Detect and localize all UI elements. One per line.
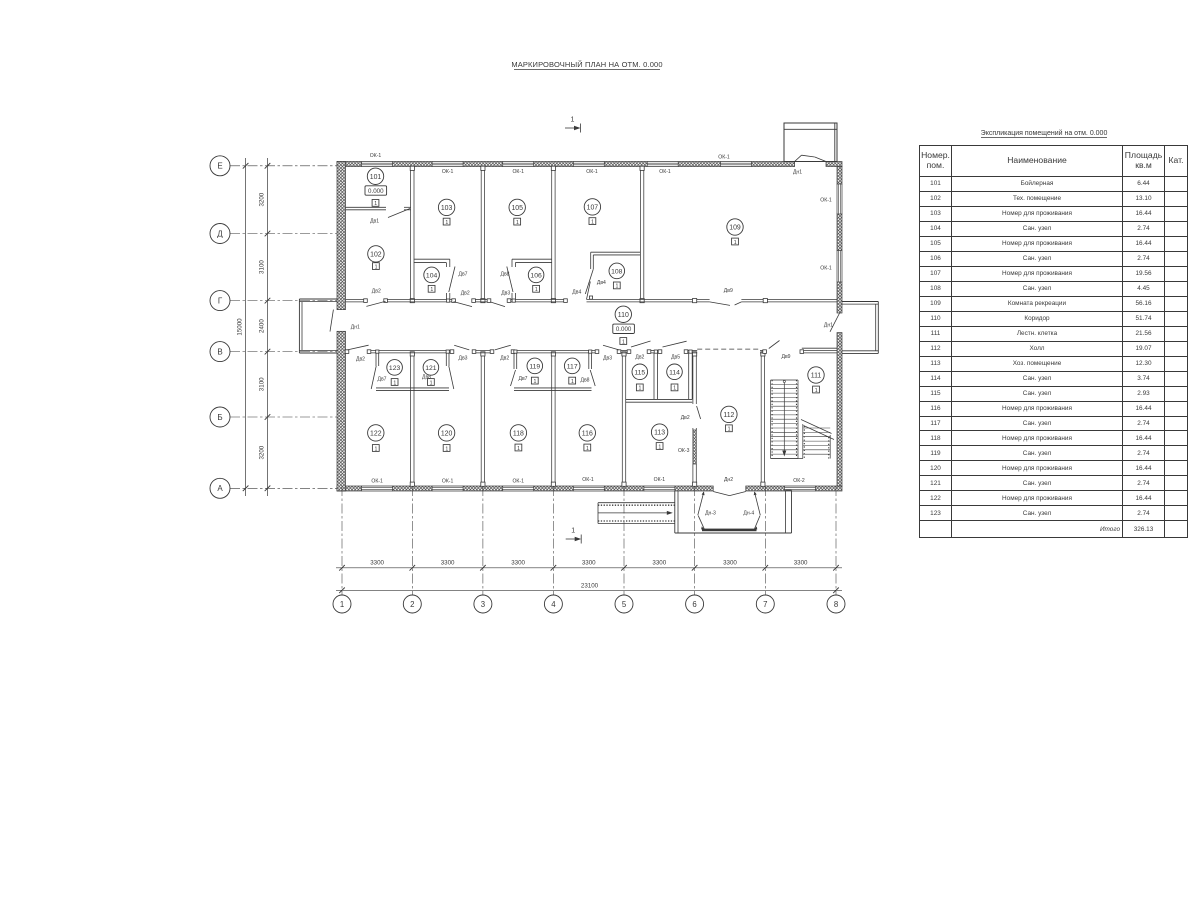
svg-text:Е: Е <box>217 162 222 171</box>
svg-text:ОК-1: ОК-1 <box>820 198 832 204</box>
svg-text:108: 108 <box>611 269 623 276</box>
svg-text:Дн2: Дн2 <box>724 477 733 483</box>
svg-text:1: 1 <box>734 240 737 246</box>
svg-text:Дн-4: Дн-4 <box>743 511 754 517</box>
svg-text:Б: Б <box>217 413 222 422</box>
svg-text:8: 8 <box>834 600 838 609</box>
svg-text:1: 1 <box>728 427 731 433</box>
svg-text:101: 101 <box>370 174 382 181</box>
svg-text:Экспликация помещений на отм.: Экспликация помещений на отм. 0.000 <box>981 129 1108 137</box>
svg-text:Дв8: Дв8 <box>581 377 590 383</box>
svg-text:3300: 3300 <box>370 559 384 566</box>
svg-text:1: 1 <box>591 219 594 225</box>
svg-text:15000: 15000 <box>237 318 244 336</box>
svg-text:6: 6 <box>692 600 696 609</box>
svg-text:1: 1 <box>516 220 519 226</box>
svg-text:1: 1 <box>616 284 619 290</box>
svg-text:Г: Г <box>218 297 223 306</box>
svg-text:3300: 3300 <box>794 559 808 566</box>
svg-text:117: 117 <box>567 364 578 371</box>
svg-text:Дв9: Дв9 <box>724 288 733 294</box>
svg-text:ОК-3: ОК-3 <box>678 448 690 454</box>
svg-text:107: 107 <box>587 205 599 212</box>
svg-text:Дв1: Дв1 <box>370 219 379 225</box>
svg-text:106: 106 <box>530 273 542 280</box>
svg-text:ОК-1: ОК-1 <box>442 478 454 484</box>
svg-text:В: В <box>217 348 222 357</box>
svg-text:116: 116 <box>582 431 593 438</box>
svg-text:111: 111 <box>811 373 822 380</box>
svg-text:ОК-1: ОК-1 <box>718 155 730 161</box>
svg-text:Дв3: Дв3 <box>603 356 612 362</box>
svg-text:114: 114 <box>669 369 680 376</box>
svg-text:ОК-1: ОК-1 <box>820 266 832 272</box>
svg-text:1: 1 <box>534 379 537 385</box>
svg-text:Дв5: Дв5 <box>671 355 680 361</box>
svg-text:1: 1 <box>639 386 642 392</box>
svg-text:Дв2: Дв2 <box>356 356 365 362</box>
svg-text:4: 4 <box>551 600 556 609</box>
svg-text:3300: 3300 <box>441 559 455 566</box>
svg-text:ОК-1: ОК-1 <box>442 169 454 175</box>
svg-text:1: 1 <box>375 446 378 452</box>
svg-text:1: 1 <box>445 220 448 226</box>
svg-text:7: 7 <box>763 600 767 609</box>
svg-text:1: 1 <box>517 446 520 452</box>
svg-text:Дв2: Дв2 <box>681 415 690 421</box>
svg-text:1: 1 <box>571 379 574 385</box>
svg-text:ОК-1: ОК-1 <box>654 477 666 483</box>
svg-text:1: 1 <box>393 380 396 386</box>
svg-text:1: 1 <box>586 446 589 452</box>
svg-text:105: 105 <box>511 205 523 212</box>
svg-text:ОК-1: ОК-1 <box>512 478 524 484</box>
svg-text:3: 3 <box>481 600 485 609</box>
svg-text:ОК-2: ОК-2 <box>793 478 805 484</box>
svg-text:А: А <box>217 484 223 493</box>
svg-text:Дв7: Дв7 <box>378 376 387 382</box>
svg-text:122: 122 <box>370 431 382 438</box>
svg-text:ОК-1: ОК-1 <box>659 169 671 175</box>
svg-text:1: 1 <box>658 444 661 450</box>
svg-text:Дв2: Дв2 <box>635 355 644 361</box>
svg-text:Д: Д <box>217 229 223 238</box>
svg-text:3200: 3200 <box>258 445 265 459</box>
svg-text:0.000: 0.000 <box>616 326 632 333</box>
svg-text:ОК-1: ОК-1 <box>512 169 524 175</box>
svg-text:Дв2: Дв2 <box>372 289 381 295</box>
svg-text:1: 1 <box>571 528 575 535</box>
svg-text:Дн1: Дн1 <box>351 324 360 330</box>
svg-text:3100: 3100 <box>259 260 266 274</box>
svg-text:120: 120 <box>441 431 453 438</box>
svg-text:Дв7: Дв7 <box>519 376 528 382</box>
svg-text:115: 115 <box>634 369 645 376</box>
svg-text:3300: 3300 <box>652 559 666 566</box>
svg-text:3200: 3200 <box>259 192 266 206</box>
svg-text:ОК-1: ОК-1 <box>582 477 594 483</box>
svg-text:МАРКИРОВОЧНЫЙ ПЛАН НА ОТМ. 0.0: МАРКИРОВОЧНЫЙ ПЛАН НА ОТМ. 0.000 <box>511 60 662 69</box>
svg-text:1: 1 <box>571 117 575 124</box>
svg-text:113: 113 <box>654 430 665 437</box>
svg-text:121: 121 <box>425 365 437 372</box>
svg-text:1: 1 <box>375 264 378 270</box>
svg-text:Дв2: Дв2 <box>461 291 470 297</box>
svg-text:Дв4: Дв4 <box>572 289 581 295</box>
svg-text:1: 1 <box>374 201 377 207</box>
svg-text:123: 123 <box>389 365 401 372</box>
svg-text:1: 1 <box>445 446 448 452</box>
svg-text:112: 112 <box>723 412 734 419</box>
svg-text:Дв3: Дв3 <box>459 356 468 362</box>
svg-text:1: 1 <box>815 388 818 394</box>
svg-text:ОК-1: ОК-1 <box>371 478 383 484</box>
svg-text:ОК-1: ОК-1 <box>586 169 598 175</box>
svg-text:110: 110 <box>618 312 629 319</box>
svg-text:2: 2 <box>410 600 414 609</box>
svg-text:3300: 3300 <box>511 559 525 566</box>
svg-text:Дн-3: Дн-3 <box>705 511 716 517</box>
svg-text:Дв7: Дв7 <box>459 272 468 278</box>
svg-text:Дн1: Дн1 <box>824 323 833 329</box>
svg-text:3300: 3300 <box>582 559 596 566</box>
svg-text:ОК-1: ОК-1 <box>370 153 382 159</box>
svg-text:119: 119 <box>529 364 540 371</box>
svg-text:23100: 23100 <box>581 582 599 589</box>
svg-text:Дв4: Дв4 <box>597 280 606 286</box>
svg-text:3100: 3100 <box>259 377 266 391</box>
svg-text:104: 104 <box>426 273 438 280</box>
svg-text:1: 1 <box>430 380 433 386</box>
svg-text:5: 5 <box>622 600 627 609</box>
svg-text:102: 102 <box>370 252 382 259</box>
svg-text:1: 1 <box>340 600 344 609</box>
svg-text:Дн1: Дн1 <box>793 170 802 176</box>
svg-text:Дв3: Дв3 <box>501 290 510 296</box>
svg-text:1: 1 <box>673 386 676 392</box>
svg-text:Дв9: Дв9 <box>782 354 791 360</box>
svg-text:1: 1 <box>622 339 625 345</box>
svg-text:2400: 2400 <box>259 319 266 333</box>
svg-text:1: 1 <box>535 287 538 293</box>
svg-text:118: 118 <box>513 431 524 438</box>
svg-text:103: 103 <box>441 205 453 212</box>
svg-text:Дв8: Дв8 <box>501 272 510 278</box>
svg-text:0.000: 0.000 <box>368 188 384 195</box>
svg-text:1: 1 <box>430 287 433 293</box>
svg-text:3300: 3300 <box>723 559 737 566</box>
svg-text:109: 109 <box>729 225 741 232</box>
svg-text:Дв2: Дв2 <box>500 356 509 362</box>
